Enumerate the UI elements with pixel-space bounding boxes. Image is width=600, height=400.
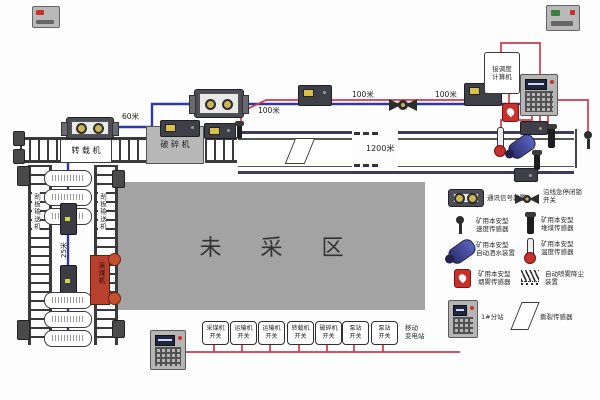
signal-device-a bbox=[66, 117, 114, 139]
crusher-label: 破 碎 机 bbox=[160, 140, 189, 149]
switch-label: 开关 bbox=[237, 333, 249, 341]
legend-label-7: 矿用本安型烟雾传感器 bbox=[478, 270, 511, 287]
unmined-area: 未 采 区 bbox=[118, 182, 425, 310]
track-foot bbox=[13, 131, 25, 146]
transfer-machine-box: 转 载 机 bbox=[60, 139, 112, 163]
legend-label-1: 通讯信号装置 bbox=[487, 194, 526, 202]
face-sensor-1 bbox=[60, 203, 77, 235]
right-conveyor-label: 刮板输送机 bbox=[98, 192, 106, 232]
comm-device-1 bbox=[298, 85, 332, 106]
legend-label-9: 1#分站 bbox=[481, 313, 504, 321]
distance-25m: 25米 bbox=[60, 242, 68, 258]
mine-monitoring-diagram: 转 载 机 破 碎 机 60米 100米 100米 100米 1200米 bbox=[0, 0, 600, 400]
distance-100m-c: 100米 bbox=[435, 91, 457, 100]
switch-label: 开关 bbox=[322, 333, 334, 341]
hydraulic-support bbox=[44, 330, 92, 347]
legend-label-6: 矿用本安型温度传感器 bbox=[541, 240, 574, 257]
shearer-drum bbox=[108, 253, 121, 266]
legend-label-8: 自动喷雾降尘装置 bbox=[545, 270, 584, 287]
dispatch-line1: 接调度 bbox=[492, 65, 512, 73]
switch-label: 破碎机 bbox=[319, 325, 337, 333]
coal-pile-sensor-icon bbox=[527, 212, 534, 234]
switch-box-2: 运输机 开关 bbox=[230, 321, 257, 345]
hydraulic-support bbox=[44, 292, 92, 309]
switch-label: 运输机 bbox=[234, 325, 252, 333]
switch-label: 开关 bbox=[294, 333, 306, 341]
switch-box-7: 泵站 开关 bbox=[371, 321, 398, 345]
signal-device-icon bbox=[448, 189, 484, 207]
unmined-area-label: 未 采 区 bbox=[184, 230, 360, 262]
legend-label-3: 矿用本安型速度传感器 bbox=[476, 217, 509, 234]
line-stop-switch bbox=[388, 96, 418, 114]
switch-label: 泵站 bbox=[349, 325, 361, 333]
dispatch-line2: 计算机 bbox=[492, 73, 512, 81]
under-belt-sensor bbox=[534, 150, 540, 170]
legend-label-10: 撕裂传感器 bbox=[540, 313, 573, 321]
distance-1200m: 1200米 bbox=[366, 144, 394, 153]
switch-label: 运输机 bbox=[262, 325, 280, 333]
substation-2-panel bbox=[150, 330, 186, 370]
left-conveyor-label: 刮板输送机 bbox=[32, 192, 40, 232]
switch-label: 开关 bbox=[209, 333, 221, 341]
switch-box-1: 采煤机 开关 bbox=[202, 321, 229, 345]
switch-box-6: 泵站 开关 bbox=[342, 321, 369, 345]
substation-1-panel bbox=[520, 74, 558, 116]
crusher-drive-device-2 bbox=[204, 123, 236, 139]
head-coal-pile-sensor bbox=[548, 124, 555, 148]
mobile-transformer-label: 移动 变电站 bbox=[405, 324, 425, 341]
smoke-sensor-device bbox=[502, 103, 519, 122]
track-foot bbox=[13, 149, 25, 164]
smoke-sensor-icon bbox=[454, 269, 471, 288]
switch-label: 开关 bbox=[349, 333, 361, 341]
transformer-line2: 变电站 bbox=[405, 332, 425, 340]
dispatch-computer-box: 接调度 计算机 bbox=[484, 52, 520, 94]
top-left-device bbox=[32, 6, 60, 28]
switch-label: 开关 bbox=[378, 333, 390, 341]
water-spray-icon bbox=[446, 237, 479, 267]
switch-label: 开关 bbox=[265, 333, 277, 341]
distance-100m-b: 100米 bbox=[352, 91, 374, 100]
crusher-outlet-track bbox=[205, 137, 237, 163]
shearer-drum bbox=[108, 292, 121, 305]
legend-label-2: 沿线急停闭锁开关 bbox=[543, 188, 582, 205]
crusher-drive-device bbox=[160, 120, 200, 137]
hydraulic-support bbox=[44, 311, 92, 328]
distance-60m: 60米 bbox=[122, 113, 139, 122]
transfer-machine-label: 转 载 机 bbox=[71, 146, 100, 155]
shearer-box: 采煤机 bbox=[90, 255, 110, 305]
switch-label: 泵站 bbox=[378, 325, 390, 333]
switch-box-4: 转载机 开关 bbox=[287, 321, 314, 345]
top-right-device bbox=[546, 5, 580, 31]
tail-coal-pile-sensor bbox=[237, 121, 242, 139]
legend-label-4: 矿用本安型堆煤传感器 bbox=[541, 216, 574, 233]
tear-sensor-icon bbox=[510, 302, 539, 330]
distance-100m-a: 100米 bbox=[258, 107, 280, 116]
substation-icon bbox=[448, 300, 478, 338]
under-belt-device bbox=[514, 168, 538, 182]
switch-label: 采煤机 bbox=[206, 325, 224, 333]
head-drive-device bbox=[520, 121, 548, 135]
shearer-label: 采煤机 bbox=[96, 262, 106, 285]
hydraulic-support bbox=[44, 170, 92, 187]
signal-device-b bbox=[194, 89, 244, 118]
switch-box-5: 破碎机 开关 bbox=[315, 321, 342, 345]
switch-box-3: 运输机 开关 bbox=[258, 321, 285, 345]
spray-dedust-icon bbox=[521, 270, 539, 282]
switch-label: 转载机 bbox=[291, 325, 309, 333]
legend-label-5: 矿用本安型自动洒水装置 bbox=[476, 241, 515, 258]
